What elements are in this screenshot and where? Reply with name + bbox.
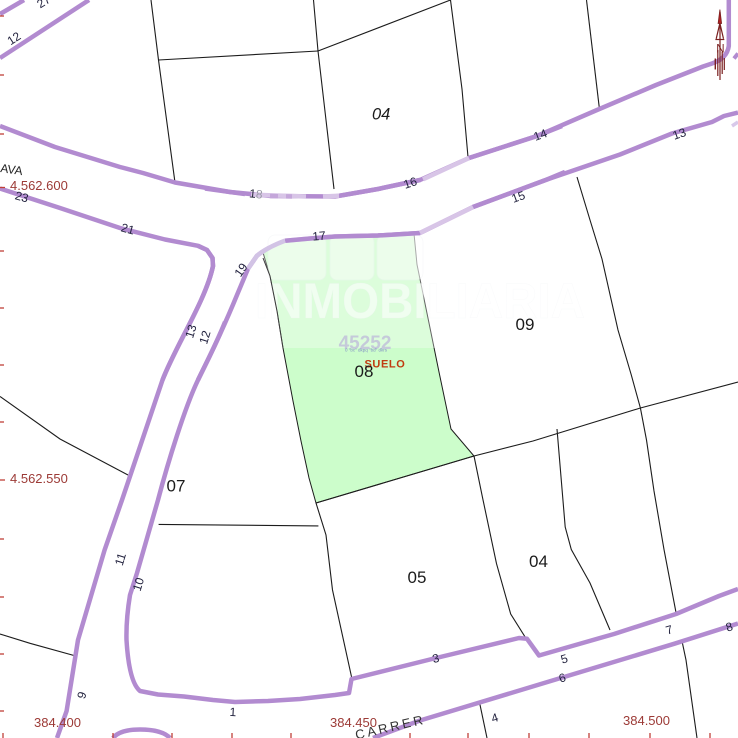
svg-text:4.562.550: 4.562.550 <box>10 471 68 486</box>
svg-text:18: 18 <box>249 186 264 201</box>
svg-text:04: 04 <box>372 106 390 124</box>
svg-text:1: 1 <box>229 705 237 719</box>
svg-text:4.562.600: 4.562.600 <box>10 178 68 193</box>
svg-text:05: 05 <box>408 568 427 587</box>
svg-text:09: 09 <box>516 315 535 334</box>
svg-text:384.400: 384.400 <box>34 715 81 730</box>
svg-text:17: 17 <box>312 228 327 243</box>
svg-text:04: 04 <box>529 552 548 571</box>
svg-text:384.450: 384.450 <box>330 715 377 730</box>
svg-text:0 "bc" dkpq "bd" dkrs: 0 "bc" dkpq "bd" dkrs <box>345 348 388 353</box>
svg-text:08: 08 <box>355 362 374 381</box>
svg-text:07: 07 <box>167 477 186 496</box>
svg-text:INMOBILIARIA: INMOBILIARIA <box>255 273 585 329</box>
svg-text:AVA: AVA <box>0 161 24 178</box>
svg-text:384.500: 384.500 <box>623 713 670 728</box>
